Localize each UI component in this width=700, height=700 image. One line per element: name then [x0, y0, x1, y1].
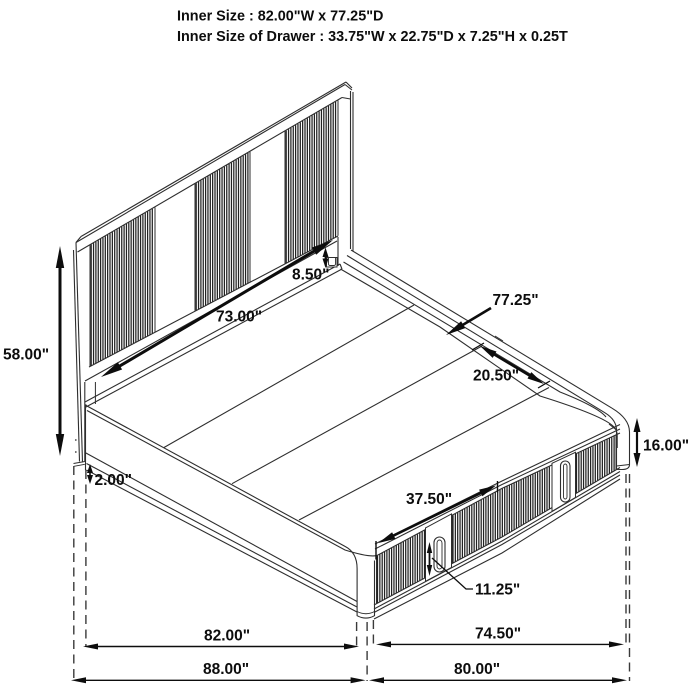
svg-text:74.50": 74.50": [475, 626, 521, 643]
svg-text:8.50": 8.50": [292, 267, 330, 284]
svg-text:16.00": 16.00": [643, 438, 689, 455]
svg-text:88.00": 88.00": [203, 661, 249, 678]
svg-text:Inner Size of Drawer : 33.75"W: Inner Size of Drawer : 33.75"W x 22.75"D…: [177, 29, 568, 45]
svg-text:20.50": 20.50": [473, 368, 519, 385]
svg-text:77.25": 77.25": [493, 292, 539, 309]
svg-text:Inner Size : 82.00"W x 77.25"D: Inner Size : 82.00"W x 77.25"D: [177, 9, 383, 25]
svg-text:37.50": 37.50": [406, 491, 452, 508]
svg-text:80.00": 80.00": [454, 661, 500, 678]
svg-text:73.00": 73.00": [216, 309, 262, 326]
svg-text:2.00": 2.00": [95, 472, 133, 489]
svg-text:11.25": 11.25": [475, 582, 520, 599]
svg-text:58.00": 58.00": [3, 347, 49, 364]
svg-text:82.00": 82.00": [204, 628, 250, 645]
